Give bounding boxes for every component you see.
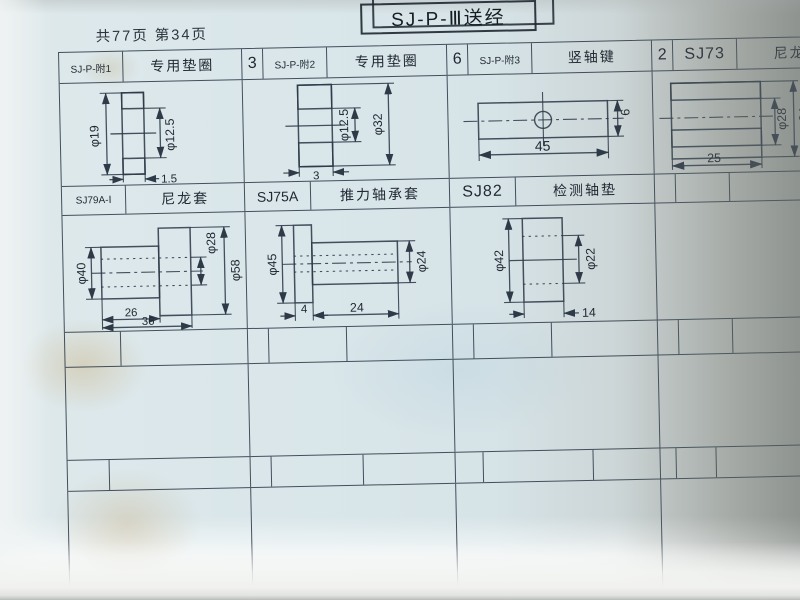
dim-bore-diameter: φ28 — [204, 232, 218, 254]
part-name: 竖轴键 — [532, 41, 652, 73]
scanned-page-photo: 共77页 第34页 SJ-P-Ⅲ送经 SJ-P-附1 专用垫圈 3 SJ-P-附… — [0, 0, 800, 600]
dim-total-length: 36 — [142, 316, 155, 328]
dim-body-diameter: φ40 — [74, 262, 88, 284]
dim-outer-diameter: φ19 — [87, 125, 101, 147]
part-header-p2: 3 SJ-P-附2 专用垫圈 — [242, 45, 448, 79]
section-title: SJ-P-Ⅲ送经 — [391, 3, 506, 32]
dim-flange-diameter: φ58 — [228, 259, 242, 281]
drawing-special-washer-1: φ19 φ12.5 1.5 — [60, 80, 244, 186]
page-count-label: 共77页 第34页 — [95, 23, 208, 46]
part-header-p5: SJ79A-Ⅰ 尼龙套 — [62, 183, 246, 215]
part-header-p4: 2 SJ73 尼龙套 — [652, 36, 800, 70]
empty-row-3 — [66, 351, 800, 461]
dim-outer-diameter: φ42 — [492, 250, 506, 272]
empty-row-4 — [68, 475, 800, 600]
dim-body-length: 24 — [350, 300, 364, 314]
part-code: SJ-P-附3 — [468, 43, 533, 74]
drawing-cell-p6: φ45 4 24 φ24 — [245, 208, 452, 328]
dim-length: 45 — [535, 138, 551, 154]
dim-length: 14 — [582, 306, 596, 320]
parts-table: SJ-P-附1 专用垫圈 3 SJ-P-附2 专用垫圈 6 SJ-P-附3 竖轴… — [58, 35, 800, 600]
dim-bore-diameter: φ22 — [584, 248, 598, 270]
dim-flange-width: 4 — [301, 304, 308, 316]
part-code: SJ73 — [673, 39, 738, 70]
drawing-shaft-key: 45 6 — [448, 72, 654, 178]
catalog-sheet: 共77页 第34页 SJ-P-Ⅲ送经 SJ-P-附1 专用垫圈 3 SJ-P-附… — [58, 35, 800, 52]
dim-inner-diameter: φ12.5 — [337, 109, 352, 142]
part-code: SJ-P-附1 — [59, 52, 124, 83]
part-name: 尼龙套 — [126, 183, 245, 213]
drawing-thrust-bearing-sleeve: φ45 4 24 φ24 — [245, 208, 451, 328]
dim-inner-diameter: φ12.5 — [163, 118, 178, 151]
part-qty: 3 — [242, 49, 264, 79]
drawing-cell-p5: φ40 φ28 φ58 26 — [62, 212, 247, 332]
dim-body-diameter: φ24 — [414, 250, 428, 272]
part-code: SJ75A — [245, 182, 312, 211]
dim-outer-diameter: φ34 — [797, 107, 800, 129]
part-name: 推力轴承套 — [311, 179, 450, 210]
drawing-cell-p3: 45 6 — [448, 72, 655, 178]
drawing-detection-shaft-washer: φ42 φ22 14 — [450, 204, 656, 324]
drawing-cell-p2: φ12.5 φ32 3 — [243, 76, 450, 182]
part-name: 尼龙套 — [737, 36, 800, 69]
part-name: 专用垫圈 — [327, 45, 447, 77]
part-header-p1: SJ-P-附1 专用垫圈 — [59, 49, 243, 83]
drawing-cell-p4: φ28 φ34 25 — [653, 67, 800, 173]
part-header-p3: 6 SJ-P-附3 竖轴键 — [447, 41, 653, 75]
part-code: SJ82 — [450, 177, 517, 206]
part-qty: 2 — [652, 40, 674, 70]
empty-header-cell — [655, 170, 800, 202]
drawing-nylon-sleeve-sj79a: φ40 φ28 φ58 26 — [62, 212, 246, 332]
part-code: SJ-P-附2 — [263, 47, 328, 78]
dim-length: 25 — [707, 151, 721, 165]
drawing-cell-p7: φ42 φ22 14 — [450, 204, 657, 324]
part-qty: 6 — [447, 44, 469, 74]
part-name: 检测轴垫 — [516, 175, 655, 206]
dim-flange-diameter: φ45 — [265, 253, 279, 275]
part-header-p6: SJ75A 推力轴承套 — [245, 179, 451, 211]
section-title-box: SJ-P-Ⅲ送经 — [360, 0, 537, 35]
drawing-row-1: φ19 φ12.5 1.5 — [60, 67, 800, 187]
part-header-p7: SJ82 检测轴垫 — [450, 175, 656, 207]
empty-drawing-cell — [655, 199, 800, 319]
page-left-margin-shade — [0, 0, 46, 600]
part-code: SJ79A-Ⅰ — [62, 186, 127, 215]
drawing-nylon-sleeve-sj73: φ28 φ34 25 — [653, 67, 800, 173]
part-name: 专用垫圈 — [123, 49, 242, 81]
dim-height: 6 — [618, 108, 632, 115]
dim-body-length: 26 — [125, 307, 138, 319]
drawing-row-2: φ40 φ28 φ58 26 — [62, 199, 800, 333]
drawing-special-washer-2: φ12.5 φ32 3 — [243, 76, 449, 182]
dim-bore-diameter: φ28 — [775, 108, 789, 130]
dim-outer-diameter: φ32 — [371, 113, 385, 135]
drawing-cell-p1: φ19 φ12.5 1.5 — [60, 80, 245, 186]
